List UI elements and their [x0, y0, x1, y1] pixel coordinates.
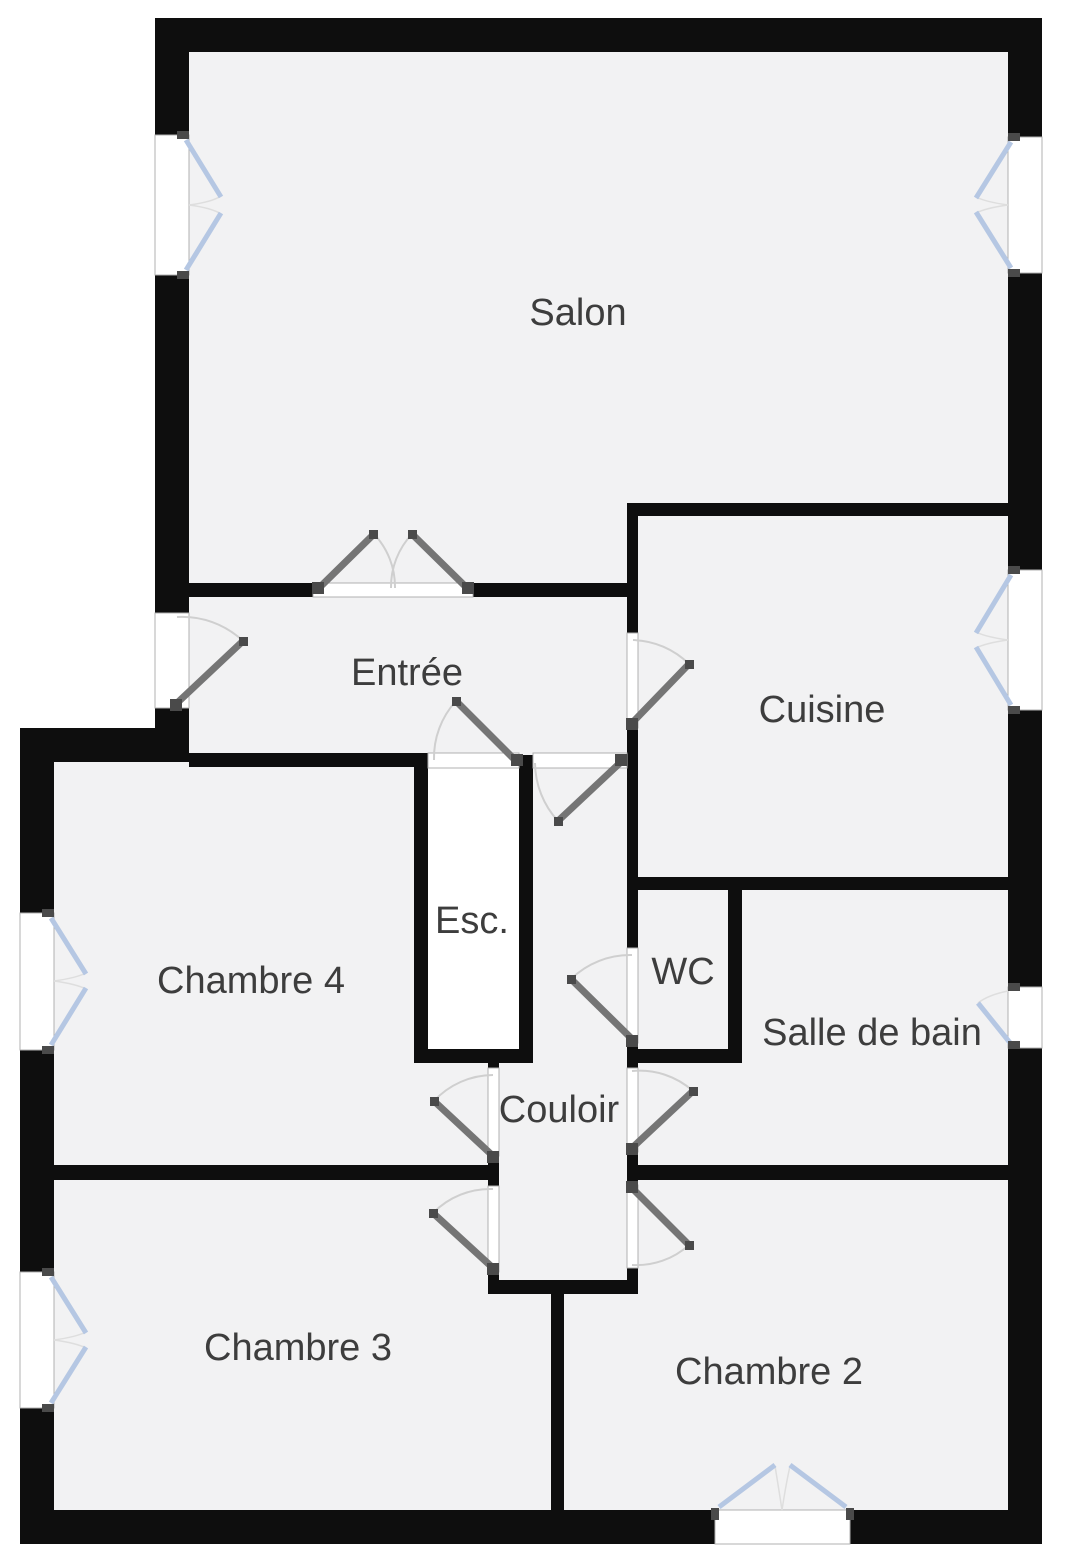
door-opening-chambre4 [488, 1068, 499, 1156]
window-stub [1008, 706, 1020, 714]
window-opening-chambre2 [715, 1510, 850, 1544]
window-stub [42, 909, 54, 917]
room-label-sdb: Salle de bain [762, 1012, 982, 1054]
wall-stub [627, 1268, 638, 1282]
window-opening-chambre4 [20, 913, 54, 1050]
door-opening-chambre3 [488, 1186, 499, 1272]
door-hinge [170, 699, 182, 711]
window-stub [1008, 983, 1020, 991]
wall-chambre4-chambre3 [54, 1165, 499, 1180]
room-label-couloir: Couloir [499, 1089, 620, 1131]
door-hinge [626, 1181, 638, 1193]
door-hinge [487, 1263, 499, 1275]
wall-stair-bottom [414, 1049, 533, 1063]
wall-stair-right [519, 755, 533, 1063]
window-stub [42, 1404, 54, 1412]
room-label-chambre2: Chambre 2 [675, 1351, 863, 1393]
floor-plan-canvas: Salon Entrée Cuisine Esc. Chambre 4 WC S… [0, 0, 1066, 1566]
room-label-chambre4: Chambre 4 [157, 960, 345, 1002]
room-label-chambre3: Chambre 3 [204, 1327, 392, 1369]
window-stub [1008, 566, 1020, 574]
window-opening-chambre3 [20, 1272, 54, 1408]
window-stub [42, 1268, 54, 1276]
window-opening-salon-right [1008, 137, 1042, 273]
door-hinge [312, 582, 324, 594]
wall-chambre3-chambre2 [551, 1294, 564, 1510]
window-stub [177, 271, 189, 279]
door-hinge [626, 1143, 638, 1155]
window-stub [1008, 1041, 1020, 1049]
wall-exterior-left-lower [20, 728, 54, 1544]
door-hinge [511, 754, 523, 766]
door-tip [408, 530, 417, 539]
wall-cuisine-top [627, 503, 1008, 516]
window-stub [1008, 269, 1020, 277]
window-stub [1008, 133, 1020, 141]
wall-stub [488, 1179, 499, 1186]
wall-wc-bottom [627, 1049, 742, 1063]
window-opening-cuisine [1008, 570, 1042, 710]
wall-stair-left [414, 767, 428, 1063]
door-tip [452, 697, 461, 706]
room-label-salon: Salon [529, 292, 626, 334]
door-tip [689, 1087, 698, 1096]
door-tip [430, 1097, 439, 1106]
floor-plan-page: Salon Entrée Cuisine Esc. Chambre 4 WC S… [0, 0, 1066, 1566]
window-stub [846, 1508, 854, 1520]
door-tip [369, 530, 378, 539]
door-opening-chambre2 [627, 1185, 638, 1268]
door-tip [239, 637, 248, 646]
door-tip [567, 975, 576, 984]
wall-exterior-bottom [20, 1510, 1042, 1544]
window-opening-salon-left [155, 135, 189, 275]
wall-sdb-chambre2 [627, 1165, 1008, 1180]
door-hinge [615, 754, 627, 766]
door-opening-wc [627, 948, 638, 1043]
room-label-cuisine: Cuisine [759, 689, 886, 731]
room-label-esc: Esc. [435, 900, 509, 942]
wall-exterior-top [155, 18, 1042, 52]
window-stub [42, 1046, 54, 1054]
door-hinge [487, 1151, 499, 1163]
wall-cuisine-bottom [627, 877, 1008, 890]
door-tip [554, 817, 563, 826]
door-hinge [462, 582, 474, 594]
wall-wc-left-upper [627, 890, 638, 948]
door-hinge [626, 718, 638, 730]
wall-wc-right [728, 890, 742, 1063]
wall-couloir-bottom [488, 1280, 638, 1294]
door-tip [685, 1241, 694, 1250]
wall-entree-chambre4 [189, 753, 428, 767]
room-label-wc: WC [651, 951, 714, 993]
room-label-entree: Entrée [351, 652, 463, 694]
door-opening-salon-double [313, 583, 473, 597]
window-stub [177, 131, 189, 139]
door-tip [429, 1209, 438, 1218]
door-hinge [626, 1035, 638, 1047]
window-opening-sdb [1008, 987, 1042, 1048]
door-tip [685, 660, 694, 669]
window-stub [711, 1508, 719, 1520]
